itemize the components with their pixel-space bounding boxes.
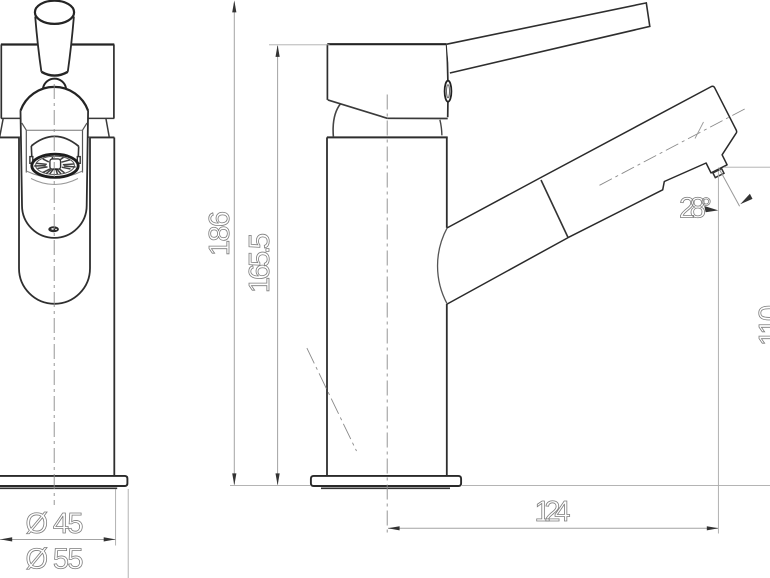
svg-text:124: 124 [535, 496, 571, 528]
svg-text:Ø 45: Ø 45 [26, 508, 84, 540]
svg-text:186: 186 [204, 211, 236, 256]
svg-text:28°: 28° [679, 193, 712, 225]
svg-text:Ø 55: Ø 55 [26, 544, 84, 576]
svg-text:165.5: 165.5 [244, 233, 276, 293]
svg-text:110: 110 [754, 305, 770, 346]
